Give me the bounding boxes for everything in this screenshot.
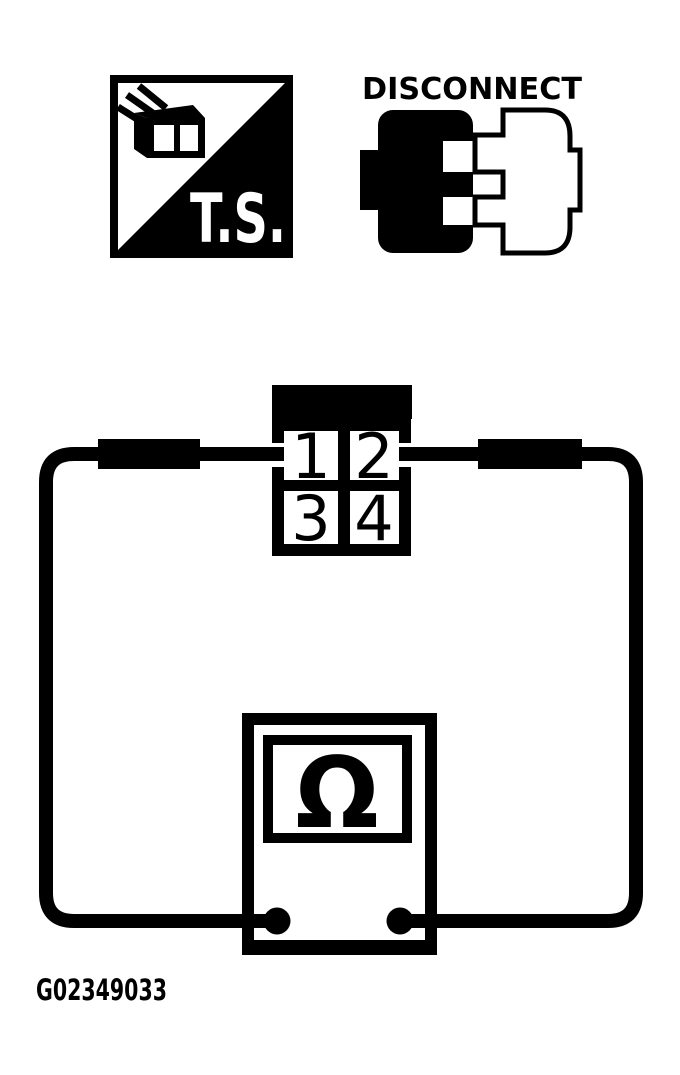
lead-stub-right <box>399 447 411 461</box>
connector-cap <box>272 385 412 419</box>
female-connector-icon <box>360 110 473 253</box>
lead-stub-left <box>272 447 284 461</box>
ts-symbol-label: T.S. <box>190 180 286 259</box>
ts-symbol: T.S. <box>114 79 289 259</box>
female-body <box>378 110 473 253</box>
female-socket-lower <box>443 197 473 225</box>
wiring-test-diagram: Ω 1 2 3 4 <box>0 0 680 1075</box>
connector-cavity-a <box>154 125 174 151</box>
meter-terminal-left <box>264 908 291 935</box>
probe-sleeve-right <box>478 439 582 469</box>
figure-canvas: Ω 1 2 3 4 <box>0 0 680 1075</box>
male-connector-icon <box>475 110 580 253</box>
disconnect-label: DISCONNECT <box>362 72 583 107</box>
pin-4-label: 4 <box>354 482 393 555</box>
female-key-tab <box>360 150 380 210</box>
connector-cavity-b <box>180 125 198 151</box>
meter-terminal-right <box>387 908 414 935</box>
ohm-symbol: Ω <box>295 737 378 851</box>
disconnect-symbol: DISCONNECT <box>360 72 583 253</box>
probe-sleeve-left <box>98 439 200 469</box>
connector-pinout: 1 2 3 4 <box>272 385 412 556</box>
pin-3-label: 3 <box>291 482 330 555</box>
female-socket-upper <box>443 141 473 172</box>
figure-id-label: G02349033 <box>36 973 167 1007</box>
